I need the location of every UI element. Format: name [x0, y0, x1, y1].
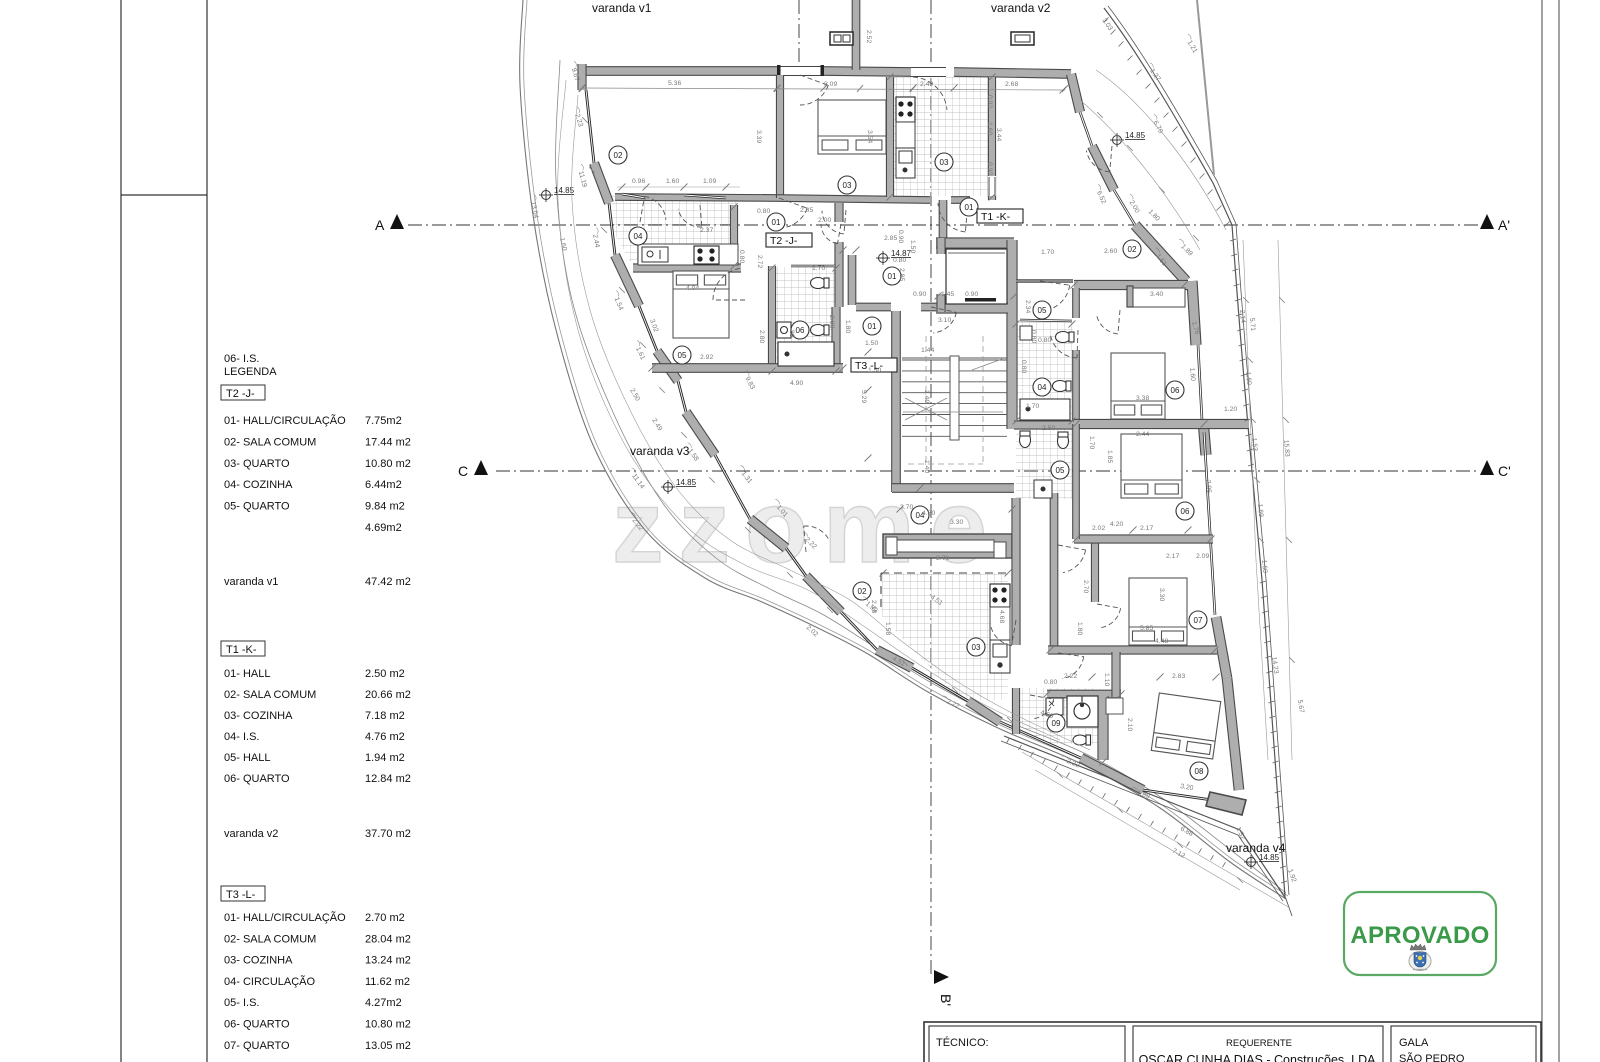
- svg-text:2.70 m2: 2.70 m2: [365, 912, 405, 924]
- svg-text:3.30: 3.30: [1158, 588, 1165, 601]
- svg-text:varanda v2: varanda v2: [991, 1, 1051, 15]
- svg-text:2.22: 2.22: [1064, 673, 1077, 680]
- svg-text:04- COZINHA: 04- COZINHA: [224, 479, 293, 491]
- svg-text:2.17: 2.17: [1166, 553, 1179, 560]
- svg-text:1.70: 1.70: [1088, 436, 1095, 449]
- svg-text:7.18 m2: 7.18 m2: [365, 710, 405, 722]
- svg-text:2.72: 2.72: [756, 255, 763, 268]
- svg-text:4.76 m2: 4.76 m2: [365, 731, 405, 743]
- svg-text:02- SALA COMUM: 02- SALA COMUM: [224, 933, 316, 945]
- svg-text:1.70: 1.70: [812, 265, 825, 272]
- svg-text:02- SALA COMUM: 02- SALA COMUM: [224, 436, 316, 448]
- svg-text:05- HALL: 05- HALL: [224, 752, 270, 764]
- svg-text:2.50: 2.50: [1042, 425, 1055, 432]
- svg-text:1.09: 1.09: [703, 178, 716, 185]
- svg-text:5.36: 5.36: [668, 80, 681, 87]
- svg-text:varanda v1: varanda v1: [224, 576, 278, 588]
- svg-text:T1 -K-: T1 -K-: [226, 644, 257, 656]
- svg-text:01: 01: [772, 218, 781, 227]
- svg-text:28.04 m2: 28.04 m2: [365, 933, 411, 945]
- svg-text:7.75m2: 7.75m2: [365, 415, 402, 427]
- svg-text:02- SALA COMUM: 02- SALA COMUM: [224, 689, 316, 701]
- svg-text:REQUERENTE: REQUERENTE: [1226, 1038, 1292, 1049]
- svg-text:06: 06: [796, 326, 805, 335]
- svg-text:0.92: 0.92: [986, 162, 993, 175]
- svg-text:1.60: 1.60: [986, 122, 993, 135]
- svg-text:04- CIRCULAÇÃO: 04- CIRCULAÇÃO: [224, 975, 316, 988]
- svg-text:4.90: 4.90: [790, 380, 803, 387]
- svg-text:13.05 m2: 13.05 m2: [365, 1040, 411, 1052]
- svg-text:2.17: 2.17: [1140, 525, 1153, 532]
- svg-text:01: 01: [888, 272, 897, 281]
- svg-text:3.39: 3.39: [755, 130, 762, 143]
- svg-text:03: 03: [972, 643, 981, 652]
- svg-text:4.80: 4.80: [922, 510, 935, 517]
- svg-text:0.90: 0.90: [965, 291, 978, 298]
- svg-text:2.37: 2.37: [700, 227, 713, 234]
- svg-text:0.80: 0.80: [1030, 330, 1037, 343]
- svg-text:4.48: 4.48: [1155, 638, 1168, 645]
- svg-text:T1 -K-: T1 -K-: [981, 211, 1011, 223]
- svg-text:3.30: 3.30: [950, 519, 963, 526]
- svg-text:1.70: 1.70: [1026, 403, 1039, 410]
- svg-text:varanda v2: varanda v2: [224, 828, 278, 840]
- svg-text:2.02: 2.02: [1092, 525, 1105, 532]
- svg-text:OSCAR CUNHA DIAS - Construções: OSCAR CUNHA DIAS - Construções, LDA: [1139, 1053, 1377, 1062]
- svg-text:09: 09: [1052, 719, 1061, 728]
- svg-text:17.44 m2: 17.44 m2: [365, 436, 411, 448]
- svg-text:2.44: 2.44: [1136, 431, 1149, 438]
- svg-text:0.80: 0.80: [1038, 337, 1051, 344]
- svg-text:4.20: 4.20: [1110, 521, 1123, 528]
- svg-text:3.40: 3.40: [1150, 291, 1163, 298]
- svg-text:07- QUARTO: 07- QUARTO: [224, 1040, 290, 1052]
- svg-text:1.85: 1.85: [1106, 450, 1113, 463]
- svg-text:03: 03: [940, 158, 949, 167]
- svg-text:2.70: 2.70: [1082, 580, 1089, 593]
- svg-text:1.69: 1.69: [1256, 504, 1264, 518]
- svg-text:07: 07: [1194, 616, 1203, 625]
- svg-text:04- I.S.: 04- I.S.: [224, 731, 259, 743]
- svg-text:03- QUARTO: 03- QUARTO: [224, 458, 290, 470]
- svg-text:A: A: [375, 217, 385, 233]
- svg-text:2.52: 2.52: [865, 30, 872, 43]
- svg-text:01- HALL: 01- HALL: [224, 668, 270, 680]
- svg-text:3.76: 3.76: [936, 555, 949, 562]
- svg-text:5.85: 5.85: [1140, 625, 1153, 632]
- svg-text:3.38: 3.38: [1136, 395, 1149, 402]
- svg-text:14.85: 14.85: [1259, 853, 1280, 862]
- svg-text:1.58: 1.58: [884, 622, 891, 635]
- svg-text:0.90: 0.90: [897, 230, 904, 243]
- svg-text:T2 -J-: T2 -J-: [770, 235, 798, 247]
- svg-text:1.70: 1.70: [1041, 249, 1054, 256]
- svg-text:T2 -J-: T2 -J-: [226, 388, 255, 400]
- svg-text:06: 06: [1171, 386, 1180, 395]
- svg-text:0.96: 0.96: [632, 178, 645, 185]
- svg-text:2.14: 2.14: [1238, 310, 1246, 324]
- svg-text:05: 05: [1038, 306, 1047, 315]
- svg-text:1.50: 1.50: [909, 240, 916, 253]
- svg-text:04: 04: [1038, 383, 1047, 392]
- svg-text:01: 01: [868, 322, 877, 331]
- svg-text:2.00: 2.00: [818, 217, 831, 224]
- svg-text:02: 02: [614, 151, 623, 160]
- svg-text:05: 05: [1056, 466, 1065, 475]
- svg-text:08: 08: [1195, 767, 1204, 776]
- svg-text:2.09: 2.09: [1196, 553, 1209, 560]
- svg-text:3.10: 3.10: [938, 317, 951, 324]
- svg-text:2.10: 2.10: [1126, 718, 1133, 731]
- svg-text:9.84 m2: 9.84 m2: [365, 501, 405, 513]
- svg-text:0.80: 0.80: [893, 257, 906, 264]
- svg-text:06- QUARTO: 06- QUARTO: [224, 773, 290, 785]
- svg-text:2.60: 2.60: [1104, 248, 1117, 255]
- svg-text:3.54: 3.54: [866, 130, 873, 143]
- svg-text:1.60: 1.60: [1244, 372, 1252, 386]
- svg-text:2.92: 2.92: [700, 354, 713, 361]
- svg-text:06- QUARTO: 06- QUARTO: [224, 1019, 290, 1031]
- svg-text:13.24 m2: 13.24 m2: [365, 955, 411, 967]
- svg-text:80: 80: [788, 330, 795, 338]
- svg-text:0.90: 0.90: [913, 291, 926, 298]
- svg-text:37.70 m2: 37.70 m2: [365, 828, 411, 840]
- svg-text:C: C: [458, 463, 468, 479]
- svg-text:1.40: 1.40: [923, 460, 930, 473]
- svg-text:2.68: 2.68: [1005, 81, 1018, 88]
- svg-text:6.44m2: 6.44m2: [365, 479, 402, 491]
- svg-text:01: 01: [965, 203, 974, 212]
- svg-text:1.80: 1.80: [1076, 622, 1083, 635]
- svg-text:1.60: 1.60: [666, 178, 679, 185]
- svg-text:1.44: 1.44: [921, 347, 934, 354]
- svg-text:2.83: 2.83: [1172, 673, 1185, 680]
- svg-text:SÃO PEDRO: SÃO PEDRO: [1399, 1052, 1465, 1062]
- svg-text:0.92: 0.92: [986, 95, 993, 108]
- svg-text:03- COZINHA: 03- COZINHA: [224, 955, 293, 967]
- svg-text:4.04: 4.04: [686, 285, 699, 292]
- svg-text:A': A': [1498, 217, 1510, 233]
- svg-text:3.44: 3.44: [995, 128, 1002, 141]
- svg-text:2.34: 2.34: [1024, 300, 1031, 313]
- svg-text:04: 04: [634, 232, 643, 241]
- svg-text:2.85: 2.85: [800, 207, 813, 214]
- svg-text:14.85: 14.85: [676, 478, 697, 487]
- svg-text:1.60: 1.60: [1260, 560, 1268, 574]
- svg-text:LEGENDA: LEGENDA: [224, 366, 277, 378]
- svg-text:1.50: 1.50: [868, 367, 881, 374]
- svg-text:C': C': [1498, 463, 1511, 479]
- svg-text:T3 -L-: T3 -L-: [226, 889, 256, 901]
- svg-text:14.85: 14.85: [1125, 131, 1146, 140]
- svg-text:03- COZINHA: 03- COZINHA: [224, 710, 293, 722]
- svg-text:10.80 m2: 10.80 m2: [365, 1019, 411, 1031]
- svg-text:2.50 m2: 2.50 m2: [365, 668, 405, 680]
- svg-text:4.69m2: 4.69m2: [365, 522, 402, 534]
- svg-text:2.80: 2.80: [758, 330, 765, 343]
- svg-text:1.45: 1.45: [941, 291, 954, 298]
- svg-text:05: 05: [678, 351, 687, 360]
- svg-text:01- HALL/CIRCULAÇÃO: 01- HALL/CIRCULAÇÃO: [224, 911, 346, 924]
- svg-text:47.42 m2: 47.42 m2: [365, 576, 411, 588]
- svg-text:05- QUARTO: 05- QUARTO: [224, 501, 290, 513]
- svg-text:0.80: 0.80: [1044, 679, 1057, 686]
- svg-text:4.68: 4.68: [998, 610, 1005, 623]
- svg-text:0.80: 0.80: [757, 208, 770, 215]
- svg-text:3.09: 3.09: [824, 81, 837, 88]
- svg-text:GALA: GALA: [1399, 1037, 1429, 1049]
- svg-text:02: 02: [858, 587, 867, 596]
- svg-text:10.80 m2: 10.80 m2: [365, 458, 411, 470]
- svg-text:1.60: 1.60: [1188, 368, 1196, 382]
- svg-text:1.40: 1.40: [923, 390, 930, 403]
- svg-text:2.49: 2.49: [920, 81, 933, 88]
- svg-text:2.96: 2.96: [1204, 480, 1212, 494]
- svg-text:11.62 m2: 11.62 m2: [365, 976, 410, 988]
- svg-text:TÉCNICO:: TÉCNICO:: [936, 1036, 989, 1049]
- svg-text:4.27m2: 4.27m2: [365, 997, 402, 1009]
- svg-text:1.20: 1.20: [1224, 406, 1237, 413]
- svg-text:0.80: 0.80: [1020, 360, 1027, 373]
- svg-text:12.84 m2: 12.84 m2: [365, 773, 411, 785]
- svg-text:2.08: 2.08: [828, 315, 835, 328]
- svg-text:06- I.S.: 06- I.S.: [224, 353, 259, 365]
- svg-text:03: 03: [843, 181, 852, 190]
- svg-text:B': B': [938, 994, 954, 1006]
- svg-text:1.94 m2: 1.94 m2: [365, 752, 405, 764]
- svg-text:1.50: 1.50: [865, 340, 878, 347]
- svg-text:01- HALL/CIRCULAÇÃO: 01- HALL/CIRCULAÇÃO: [224, 414, 346, 427]
- svg-text:0.80: 0.80: [738, 250, 745, 263]
- svg-text:05- I.S.: 05- I.S.: [224, 997, 259, 1009]
- svg-text:02: 02: [1128, 245, 1137, 254]
- svg-text:2.85: 2.85: [884, 235, 897, 242]
- svg-text:1.10: 1.10: [1103, 673, 1110, 686]
- svg-text:1.80: 1.80: [844, 320, 851, 333]
- svg-text:5.71: 5.71: [1248, 318, 1256, 332]
- svg-text:varanda v3: varanda v3: [630, 444, 690, 458]
- svg-text:06: 06: [1181, 507, 1190, 516]
- svg-text:varanda v1: varanda v1: [592, 1, 652, 15]
- svg-text:2.85: 2.85: [898, 268, 905, 281]
- svg-text:20.66 m2: 20.66 m2: [365, 689, 411, 701]
